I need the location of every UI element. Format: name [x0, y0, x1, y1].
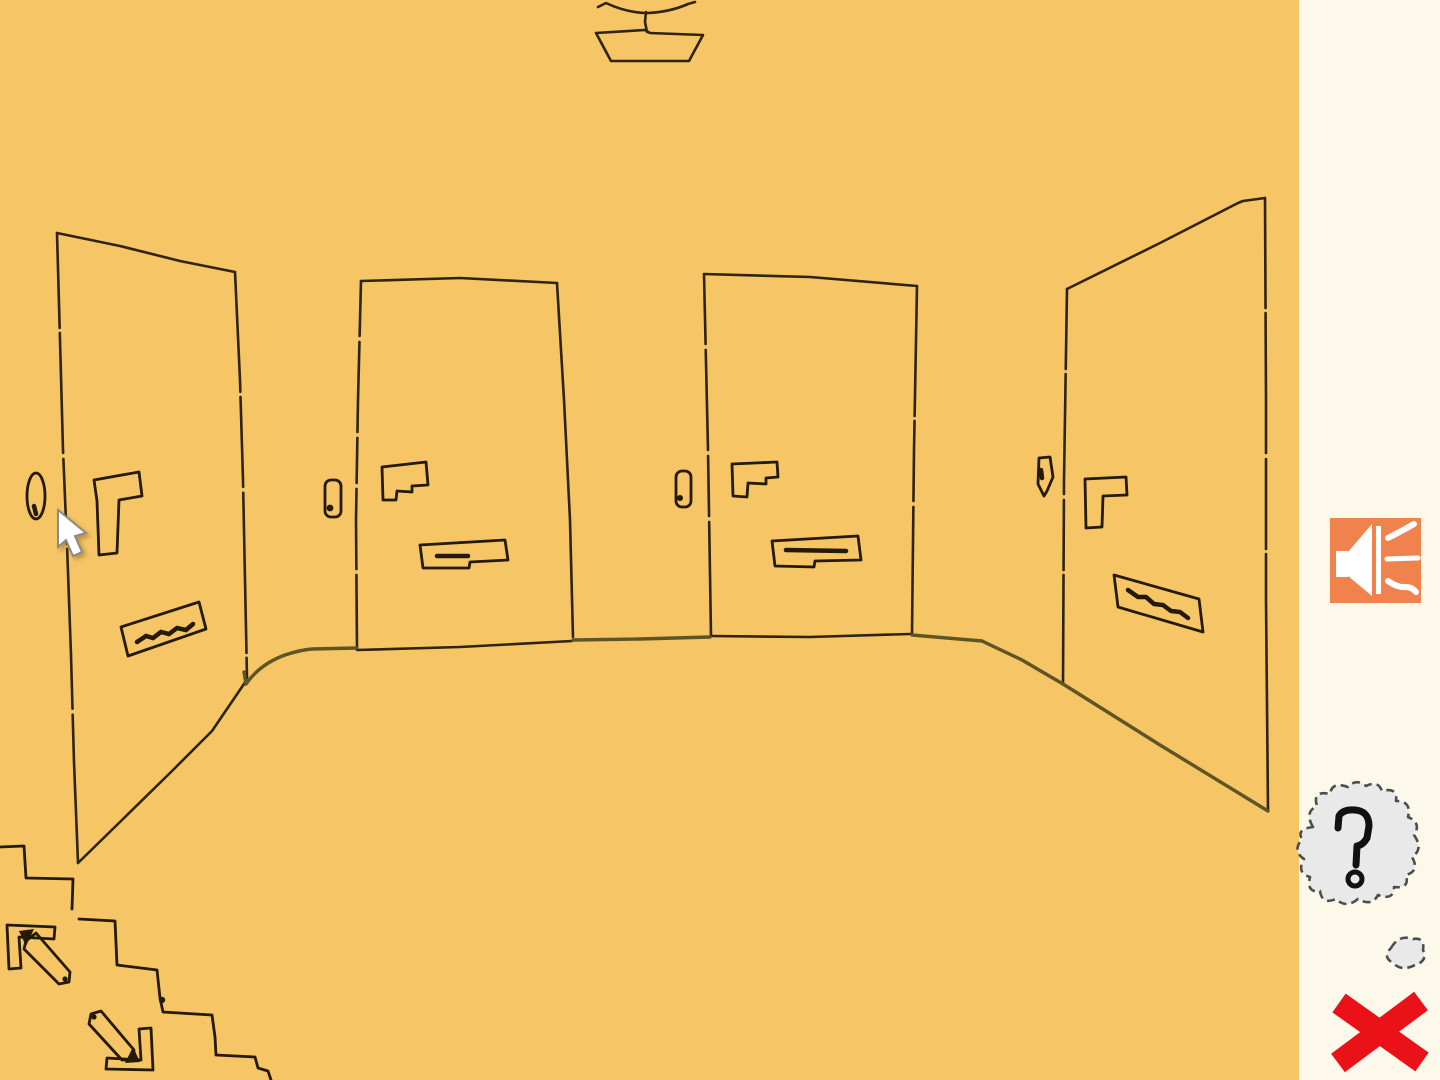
door-1-right-edge[interactable] — [235, 272, 247, 678]
door-3-doorbell-mark — [677, 495, 683, 501]
door-2-bottom-edge[interactable] — [357, 641, 572, 650]
stairs-ink-blot — [159, 997, 165, 1003]
sound-button[interactable] — [1330, 518, 1421, 603]
close-button[interactable] — [1329, 992, 1431, 1072]
door-3-bottom-edge[interactable] — [711, 634, 910, 637]
sidebar: ? — [1299, 0, 1440, 1080]
floor-lines — [244, 635, 1268, 811]
door-4-right[interactable] — [1038, 198, 1268, 810]
door-2[interactable] — [325, 278, 573, 650]
game-stage: ? — [0, 0, 1440, 1080]
door-1-handle[interactable] — [94, 472, 142, 555]
door-3-left-edge[interactable] — [704, 274, 711, 636]
door-4-handle[interactable] — [1085, 477, 1127, 528]
arrow-down-right-dot — [91, 1014, 96, 1019]
thought-bubble-small — [1387, 938, 1424, 968]
arrow-down-right-tip — [125, 1047, 140, 1063]
cursor-arrow — [58, 510, 86, 556]
door-2-doorbell-mark — [327, 505, 334, 512]
door-1-doorbell-mark — [34, 506, 36, 514]
floor-left-corner — [244, 648, 357, 684]
door-3-doorbell[interactable] — [676, 471, 691, 507]
arrow-up-left[interactable] — [7, 925, 70, 984]
speaker-icon — [1330, 518, 1421, 603]
floor-center — [573, 637, 710, 640]
door-1-bottom-edge[interactable] — [78, 681, 246, 863]
help-button[interactable]: ? — [1281, 776, 1431, 982]
ceiling-lamp-icon — [596, 2, 703, 61]
door-1-plate-scribble — [137, 624, 193, 642]
arrow-up-left-dot — [62, 976, 67, 981]
room-scene — [0, 0, 1300, 1080]
arrow-down-right[interactable] — [89, 1011, 153, 1070]
close-x-icon — [1329, 992, 1431, 1072]
question-mark-icon: ? — [1281, 776, 1431, 982]
door-4-right-edge[interactable] — [1265, 198, 1268, 810]
floor-right — [912, 635, 982, 641]
staircase-down[interactable] — [0, 846, 271, 1080]
door-3[interactable] — [676, 274, 917, 637]
door-3-right-edge[interactable] — [912, 286, 917, 634]
door-4-top-edge[interactable] — [1067, 198, 1265, 289]
door-1-top-edge[interactable] — [57, 233, 235, 272]
door-1-name-plate[interactable] — [121, 602, 206, 656]
door-4-left-edge[interactable] — [1063, 289, 1067, 684]
door-2-doorbell[interactable] — [325, 480, 341, 517]
door-4-doorbell-mark — [1041, 470, 1042, 478]
door-2-top-edge[interactable] — [361, 278, 557, 283]
door-2-left-edge[interactable] — [356, 281, 361, 649]
arrow-up-left-shaft[interactable] — [24, 933, 70, 984]
door-3-slot-line — [786, 550, 846, 551]
stairs-outline[interactable] — [0, 846, 271, 1080]
door-3-top-edge[interactable] — [704, 274, 917, 286]
door-2-handle[interactable] — [382, 462, 428, 500]
lamp-shade — [596, 30, 703, 61]
wall-base-right-2 — [1063, 684, 1268, 811]
door-3-handle[interactable] — [732, 462, 778, 497]
wall-base-right-1 — [982, 641, 1063, 684]
mouse-cursor-icon — [50, 502, 100, 572]
door-2-right-edge[interactable] — [557, 283, 573, 637]
